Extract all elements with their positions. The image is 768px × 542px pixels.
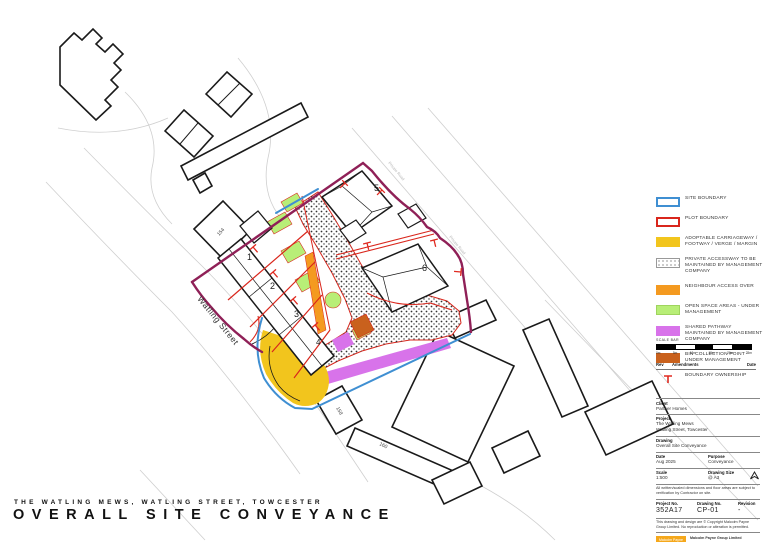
- legend-item-neighbour-access: NEIGHBOUR ACCESS OVER: [656, 284, 764, 295]
- numbers-row: Project No. 352A17 Drawing No. CP-01 Rev…: [656, 499, 760, 518]
- scale-bar: SCALE BAR 0m 5m 10m 15m 20m 25m: [656, 338, 752, 355]
- amendments-header: Amendments: [672, 362, 740, 367]
- north-arrow-icon: [749, 470, 760, 482]
- client-value: Partner Homes: [656, 406, 760, 412]
- road-label-2: Private Road: [448, 234, 467, 255]
- building-se-b: [492, 431, 540, 473]
- legend-item-private-accessway: PRIVATE ACCESSWAY TO BE MAINTAINED BY MA…: [656, 257, 764, 275]
- note-section: All written/scaled dimensions and floor …: [656, 484, 760, 499]
- scale-tick: 0m: [656, 351, 660, 355]
- neighbour-access-swatch: [656, 285, 680, 295]
- boundary-ownership-t-symbol: [656, 374, 680, 384]
- shared-pathway-swatch: [656, 326, 680, 336]
- dimensions-note: All written/scaled dimensions and floor …: [656, 486, 760, 496]
- scale-value: 1:500: [656, 475, 708, 481]
- scale-tick: 25m: [746, 351, 752, 355]
- scale-tick: 10m: [690, 351, 696, 355]
- legend-item-plot-boundary: PLOT BOUNDARY: [656, 216, 764, 227]
- rev-header: Rev: [656, 362, 672, 367]
- company-details: Malcolm Payne Group Limited 156 Holliday…: [690, 536, 755, 542]
- street-label-watling: Watling Street: [195, 294, 241, 347]
- legend-label: OPEN SPACE AREAS - UNDER MANAGEMENT: [685, 304, 763, 316]
- open-space-swatch: [656, 305, 680, 315]
- drawing-no-value: CP-01: [697, 506, 738, 515]
- drawing-section: Drawing Overall Site Conveyance: [656, 436, 760, 452]
- date-purpose-row: Date Aug 2025 Purpose Conveyance: [656, 452, 760, 468]
- scale-tick: 20m: [727, 351, 733, 355]
- legend-label: SITE BOUNDARY: [685, 196, 763, 202]
- client-section: Client Partner Homes: [656, 398, 760, 414]
- scale-bar-ticks: 0m 5m 10m 15m 20m 25m: [656, 351, 752, 355]
- scale-bar-title: SCALE BAR: [656, 338, 752, 342]
- plot-number-1: 1: [247, 252, 252, 262]
- legend-item-open-space: OPEN SPACE AREAS - UNDER MANAGEMENT: [656, 304, 764, 316]
- legend-label: NEIGHBOUR ACCESS OVER: [685, 284, 763, 290]
- plot-number-2: 2: [270, 281, 275, 291]
- scale-bar-graphic: [656, 344, 752, 350]
- scale-tick: 15m: [708, 351, 714, 355]
- drawing-value: Overall Site Conveyance: [656, 443, 760, 449]
- title-block: Client Partner Homes Project The Watling…: [656, 398, 760, 542]
- sheet-title: OVERALL SITE CONVEYANCE: [13, 507, 396, 523]
- plot-boundary-swatch: [656, 217, 680, 227]
- road-label-1: Private Road: [387, 160, 406, 181]
- company-logo: Malcolm Payne Group Ltd: [656, 536, 686, 542]
- plot-number-6: 6: [422, 263, 427, 273]
- revision-value: -: [738, 506, 760, 515]
- legend-label: ADOPTABLE CARRIAGEWAY / FOOTWAY / VERGE …: [685, 236, 763, 248]
- sheet-subtitle: THE WATLING MEWS, WATLING STREET, TOWCES…: [14, 499, 323, 506]
- scale-size-row: Scale 1:500 Drawing Size @ A3: [656, 468, 760, 484]
- revision-table: Rev Amendments Date: [656, 362, 756, 370]
- adoptable-swatch: [656, 237, 680, 247]
- private-accessway-swatch: [656, 258, 680, 268]
- sidebar: SITE BOUNDARY PLOT BOUNDARY ADOPTABLE CA…: [652, 0, 766, 542]
- project-value-2: Watling Street, Towcester: [656, 427, 760, 433]
- date-header: Date: [740, 362, 756, 367]
- legend-label: BOUNDARY OWNERSHIP: [685, 373, 763, 379]
- plot-number-3: 3: [294, 309, 299, 319]
- legend-label: PRIVATE ACCESSWAY TO BE MAINTAINED BY MA…: [685, 257, 763, 275]
- legend-item-adoptable: ADOPTABLE CARRIAGEWAY / FOOTWAY / VERGE …: [656, 236, 764, 248]
- drawing-sheet: 1 2 3 4 5 6 Watling Street 154 158 160 P…: [0, 0, 768, 542]
- project-section: Project The Watling Mews Watling Street,…: [656, 414, 760, 436]
- site-boundary-swatch: [656, 197, 680, 207]
- copyright-section: This drawing and design are © Copyright …: [656, 518, 760, 533]
- neighbour-access-area: [305, 252, 326, 334]
- copyright-text: This drawing and design are © Copyright …: [656, 520, 760, 530]
- plot-number-5: 5: [374, 183, 379, 193]
- plot5-garage: [398, 204, 426, 228]
- legend-item-site-boundary: SITE BOUNDARY: [656, 196, 764, 207]
- project-no-value: 352A17: [656, 506, 697, 515]
- building-east-thin: [523, 319, 588, 417]
- building-jagged: [60, 29, 123, 120]
- legend-item-boundary-ownership: BOUNDARY OWNERSHIP: [656, 373, 764, 384]
- company-footer: Malcolm Payne Group Ltd Malcolm Payne Gr…: [656, 532, 760, 542]
- legend-label: PLOT BOUNDARY: [685, 216, 763, 222]
- date-value: Aug 2025: [656, 459, 708, 465]
- plot-number-4: 4: [316, 338, 321, 347]
- purpose-value: Conveyance: [708, 459, 760, 465]
- scale-tick: 5m: [673, 351, 677, 355]
